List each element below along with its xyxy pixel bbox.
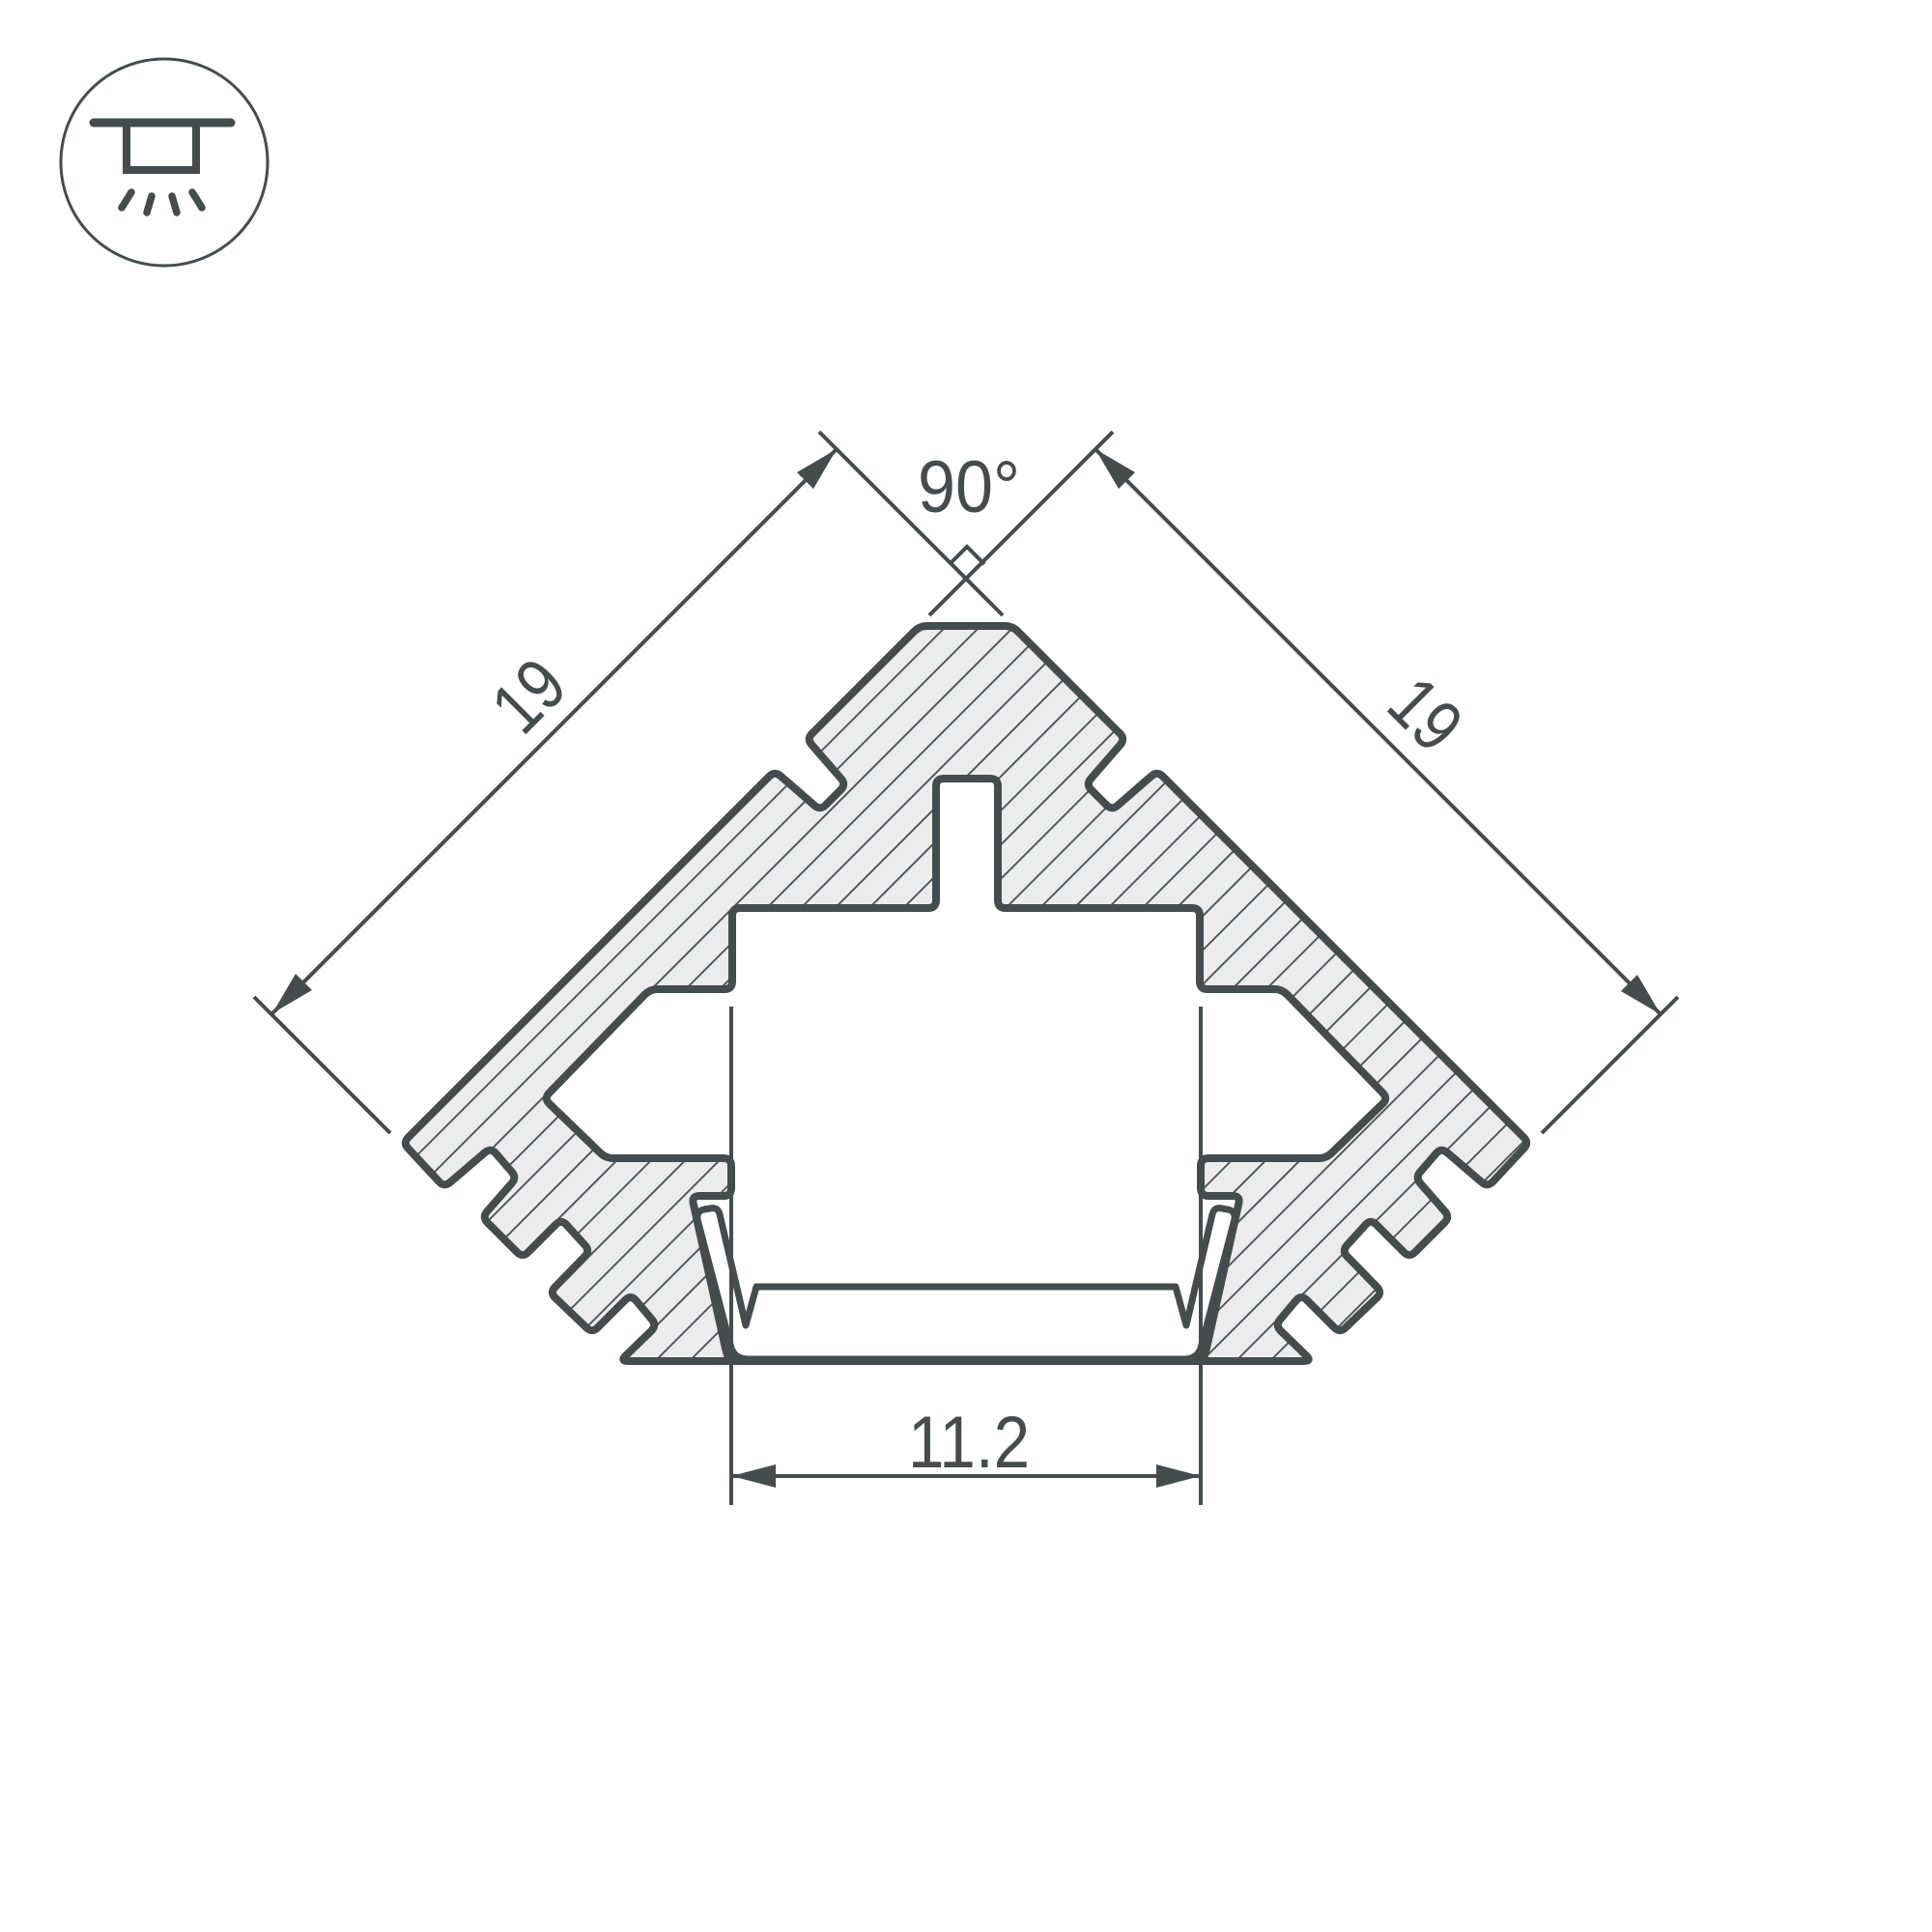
svg-text:90°: 90° bbox=[918, 446, 1020, 528]
svg-text:11.2: 11.2 bbox=[908, 1402, 1030, 1484]
